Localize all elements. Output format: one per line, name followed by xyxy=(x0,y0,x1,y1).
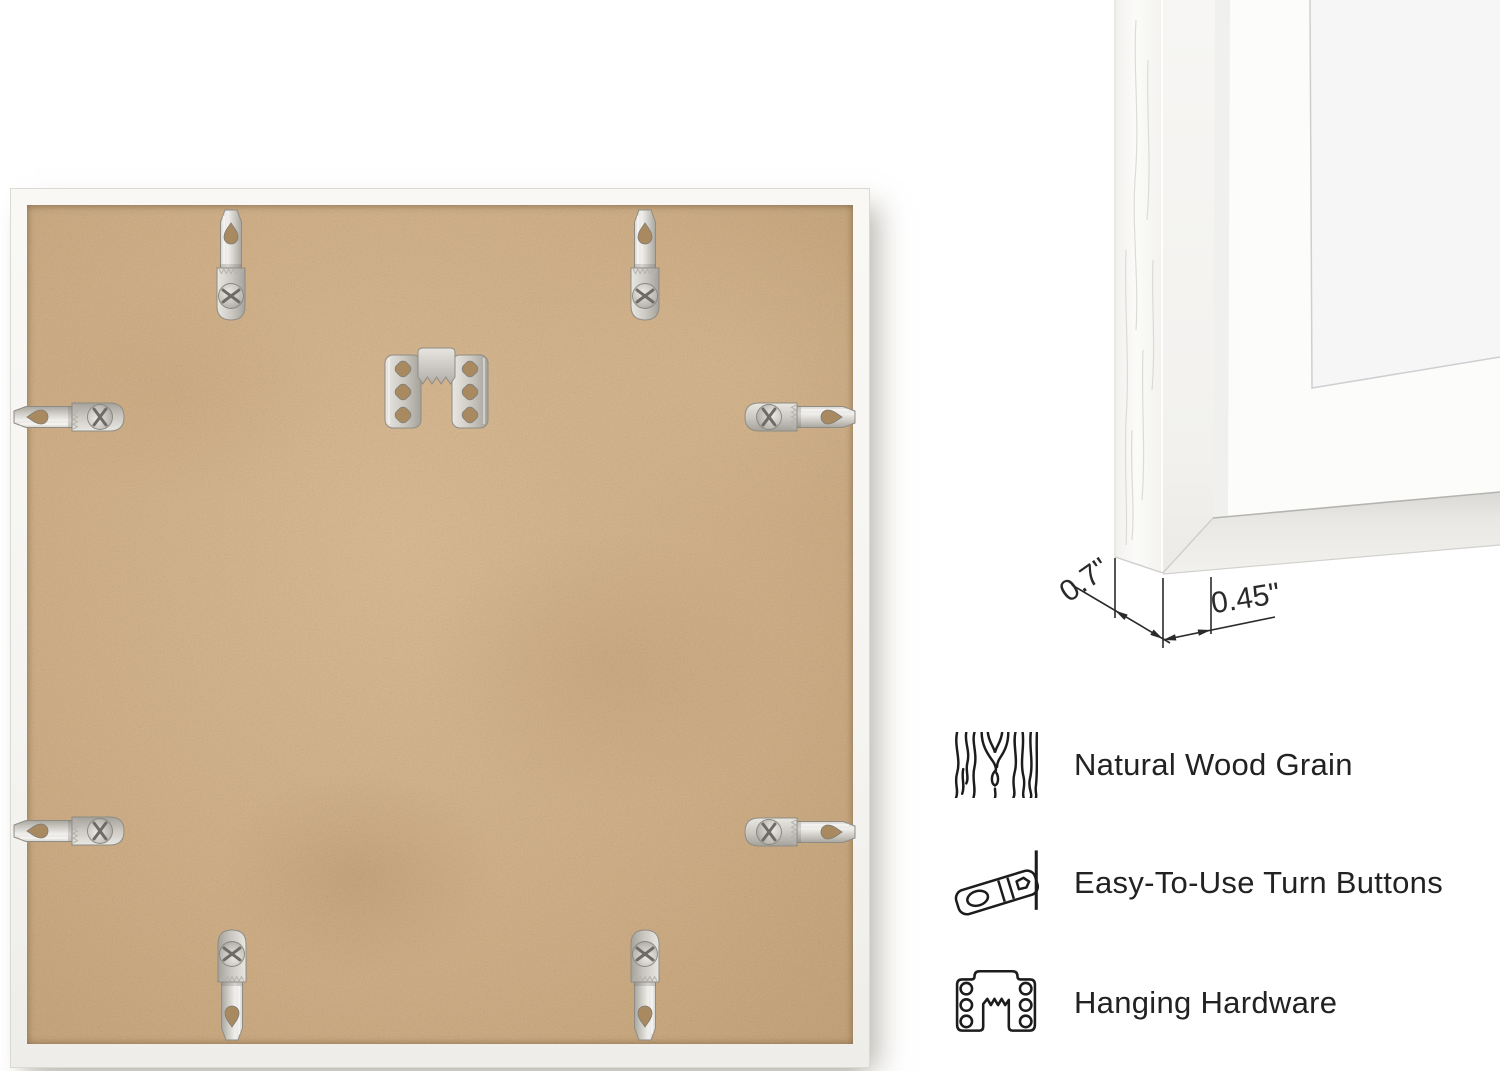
feature-label: Easy-To-Use Turn Buttons xyxy=(1074,865,1443,901)
moulding-side-face xyxy=(1115,0,1162,573)
feature-row-turn-buttons: Easy-To-Use Turn Buttons xyxy=(950,846,1443,920)
photo-opening xyxy=(1310,0,1500,388)
depth-measurement-label: 0.7" xyxy=(1054,552,1116,609)
feature-label: Natural Wood Grain xyxy=(1074,747,1353,783)
feature-row-wood-grain: Natural Wood Grain xyxy=(950,728,1353,802)
board-texture-highlights xyxy=(27,205,853,1044)
moulding-front-face xyxy=(1162,0,1215,573)
feature-row-hanging-hardware: Hanging Hardware xyxy=(950,966,1337,1040)
hanging-hardware-icon xyxy=(950,969,1042,1037)
mdf-backing-board xyxy=(27,205,853,1044)
face-width-measurement-label: 0.45" xyxy=(1209,577,1282,620)
frame-corner-detail-photo: 0.7" 0.45" xyxy=(1040,0,1500,700)
feature-label: Hanging Hardware xyxy=(1074,985,1337,1021)
frame-back-photo xyxy=(10,188,870,1068)
wood-grain-icon xyxy=(950,732,1042,798)
turn-button-icon xyxy=(950,847,1042,919)
product-infographic: 0.7" 0.45" Natural Wood Grain xyxy=(0,0,1500,1071)
